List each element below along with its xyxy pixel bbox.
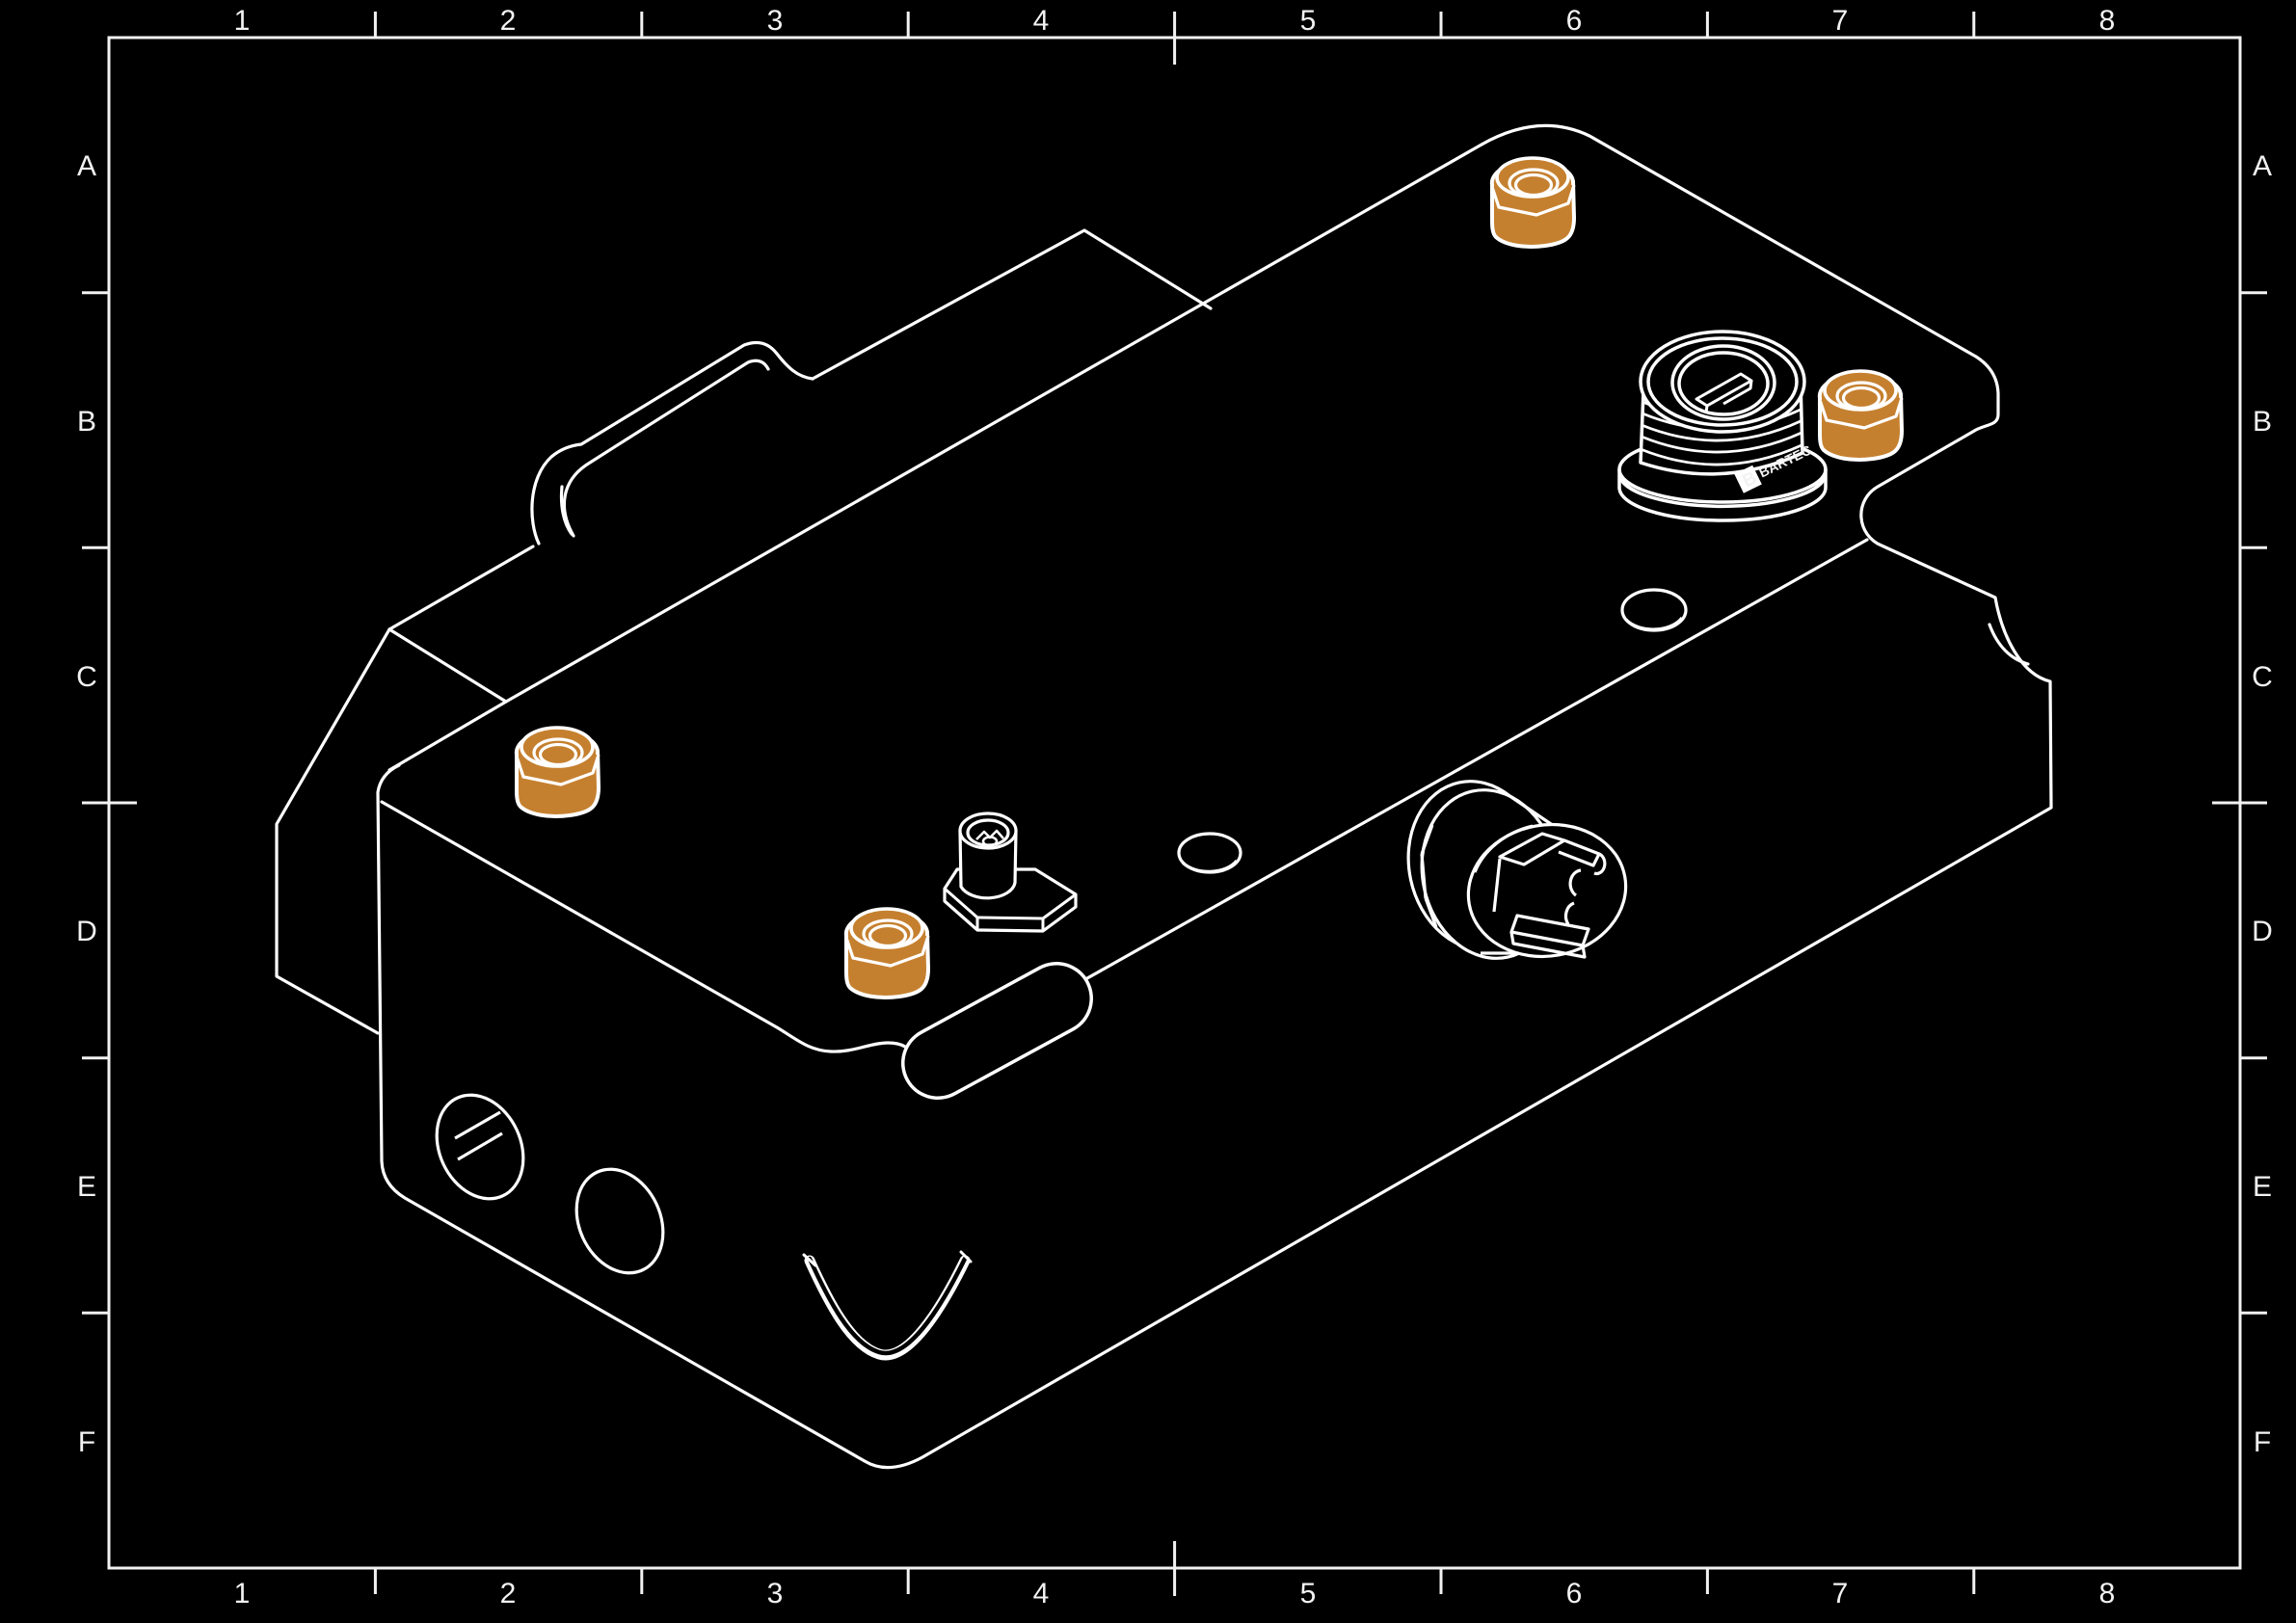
svg-text:6: 6: [1566, 1578, 1583, 1610]
svg-text:A: A: [77, 150, 96, 182]
svg-text:8: 8: [2099, 5, 2116, 37]
svg-text:E: E: [2253, 1171, 2272, 1203]
svg-text:5: 5: [1300, 5, 1317, 37]
svg-text:2: 2: [500, 5, 517, 37]
svg-text:8: 8: [2099, 1578, 2116, 1610]
svg-text:3: 3: [767, 1578, 784, 1610]
svg-text:B: B: [2253, 406, 2272, 438]
svg-text:1: 1: [234, 5, 251, 37]
svg-text:D: D: [76, 916, 97, 947]
svg-text:7: 7: [1832, 5, 1849, 37]
svg-text:F: F: [78, 1426, 95, 1458]
svg-text:E: E: [77, 1171, 96, 1203]
svg-text:C: C: [76, 661, 97, 693]
svg-text:C: C: [2252, 661, 2273, 693]
svg-text:5: 5: [1300, 1578, 1317, 1610]
svg-text:6: 6: [1566, 5, 1583, 37]
svg-text:1: 1: [234, 1578, 251, 1610]
svg-text:4: 4: [1033, 1578, 1050, 1610]
svg-text:2: 2: [500, 1578, 517, 1610]
svg-text:D: D: [2252, 916, 2273, 947]
svg-text:7: 7: [1832, 1578, 1849, 1610]
svg-text:3: 3: [767, 5, 784, 37]
svg-text:F: F: [2254, 1426, 2271, 1458]
svg-text:B: B: [77, 406, 96, 438]
svg-text:4: 4: [1033, 5, 1050, 37]
svg-text:A: A: [2253, 150, 2272, 182]
